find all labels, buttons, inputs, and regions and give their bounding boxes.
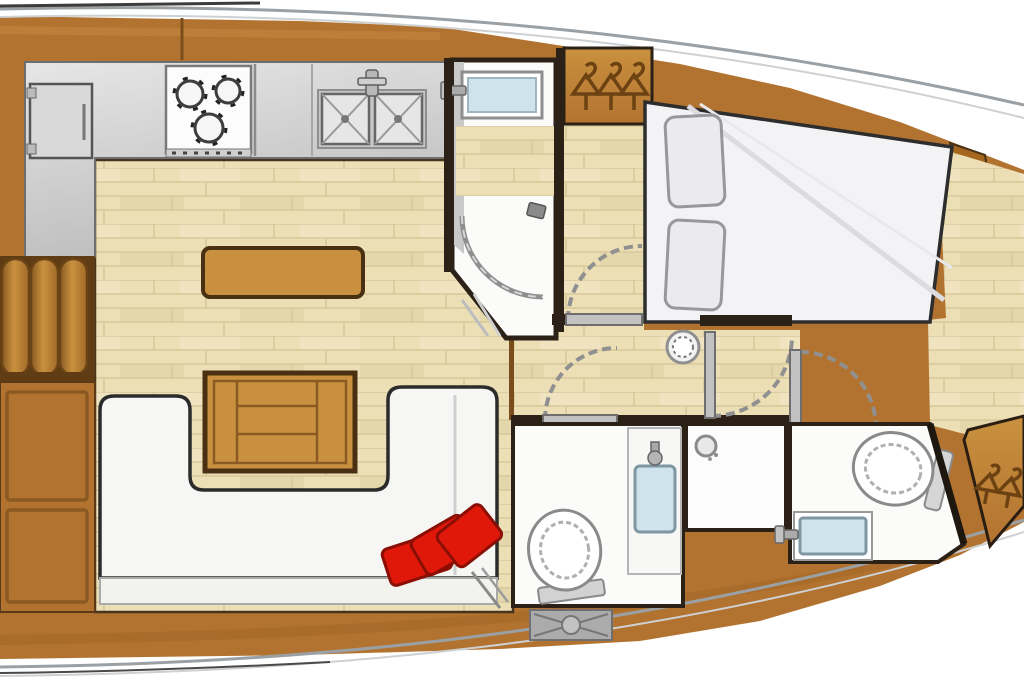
washbasin-bowl <box>468 78 536 112</box>
shower-head-icon <box>696 436 716 456</box>
pillow-1 <box>665 115 726 208</box>
deck-access-plate <box>530 610 612 640</box>
bow-head-washbasin-bowl <box>800 518 866 554</box>
bow-head-door-leaf <box>790 350 801 430</box>
steps-base <box>0 372 95 382</box>
floor-plan <box>0 0 1024 680</box>
hanging-locker-mid <box>564 48 652 124</box>
bow-head <box>775 424 964 562</box>
floor-plan-canvas <box>0 0 1024 680</box>
companion-steps <box>2 259 87 375</box>
cabin-door-leaf <box>566 314 642 325</box>
corridor-floor <box>511 330 800 420</box>
corridor-north-wall <box>700 315 792 326</box>
corridor-threshold <box>509 328 514 420</box>
sofa-front-band <box>100 578 497 604</box>
storage-cabinet <box>0 382 95 612</box>
bow-cabin-door-leaf <box>705 332 715 418</box>
head-floor-strip <box>456 126 554 196</box>
refrigerator-hinge-top <box>27 88 36 98</box>
head-lobby-wall <box>556 48 564 332</box>
shower-stall <box>686 424 786 530</box>
pillow-2 <box>665 220 726 311</box>
refrigerator-hinge-bottom <box>27 144 36 154</box>
cabin-lobby-floor <box>564 120 644 332</box>
vanity-washbasin <box>635 466 675 532</box>
galley-head-wall <box>444 58 452 272</box>
sideboard-table <box>203 248 363 297</box>
ensuite-head <box>513 424 683 640</box>
salon-table <box>205 373 355 471</box>
